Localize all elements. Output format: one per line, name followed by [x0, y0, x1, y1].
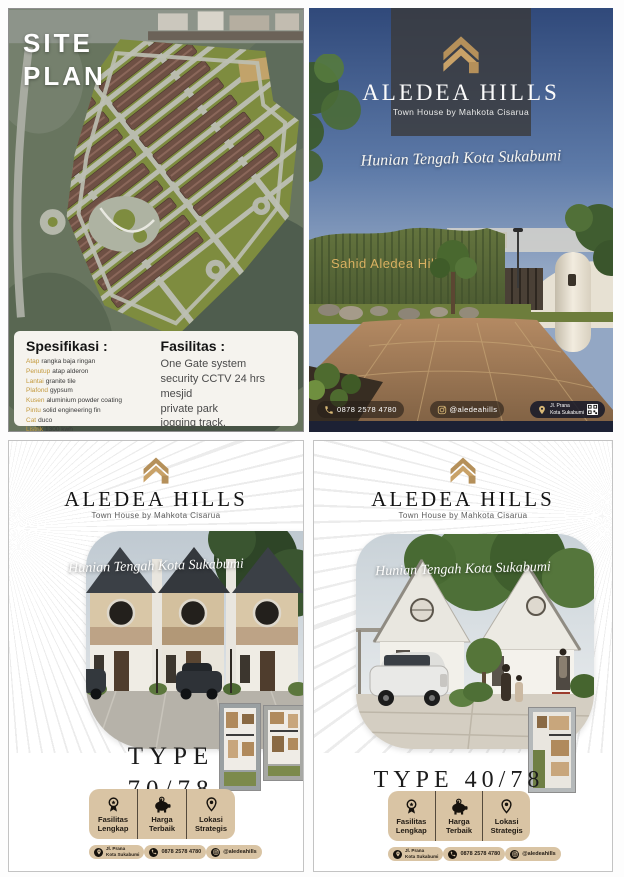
spec-item: Pintusolid engineering fin [26, 406, 147, 416]
location-pin-icon [393, 850, 402, 859]
phone-number: 0878 2578 4780 [337, 405, 397, 414]
spec-item: Plafondgypsum [26, 386, 147, 396]
instagram-icon [510, 850, 519, 859]
footer-pill-instagram[interactable]: @aledeahills [505, 847, 561, 861]
badge-facilities: FasilitasLengkap [89, 789, 137, 839]
piggy-bank-icon [153, 796, 172, 813]
badge-label: FasilitasLengkap [396, 817, 427, 835]
spec-label: Kusen [26, 397, 44, 404]
site-plan-title-line1: SITE [23, 27, 106, 60]
phone-number: 0878 2578 4780 [460, 851, 500, 858]
facility-item: security CCTV 24 hrs [161, 372, 288, 387]
instagram-handle: @aledeahills [450, 405, 498, 414]
badge-label: LokasiStrategis [491, 817, 523, 835]
contact-pill-address[interactable]: Jl. Prana Kota Sukabumi [530, 401, 605, 418]
facility-item: One Gate system [161, 357, 288, 372]
panel-site-plan: SITE PLAN Spesifikasi : Ataprangka baja … [8, 8, 304, 432]
flyer-page: SITE PLAN Spesifikasi : Ataprangka baja … [0, 0, 624, 877]
type70-line1: TYPE [97, 741, 245, 774]
facilities-heading: Fasilitas : [161, 338, 288, 354]
spec-label: Atap [26, 358, 39, 365]
brand-name: ALEDEA HILLS [314, 487, 612, 512]
spec-item: Catduco [26, 416, 147, 426]
site-plan-title: SITE PLAN [23, 27, 106, 92]
gate-sign-text: Sahid Aledea Hills [331, 256, 445, 271]
brand-subtitle: Town House by Mahkota Cisarua [9, 511, 303, 520]
badge-facilities: FasilitasLengkap [388, 791, 435, 841]
spec-label: Pintu [26, 407, 41, 414]
brand-subtitle: Town House by Mahkota Cisarua [314, 511, 612, 520]
instagram-icon [437, 405, 447, 415]
phone-icon [324, 405, 334, 415]
spec-label: Lantai [26, 378, 44, 385]
spec-item: Penutupatap alderon [26, 367, 147, 377]
panel-type-70: ALEDEA HILLS Town House by Mahkota Cisar… [8, 440, 304, 872]
medal-icon [105, 796, 122, 813]
spec-label: Cat [26, 417, 36, 424]
spec-item: Ataprangka baja ringan [26, 357, 147, 367]
spec-value: granite tile [46, 378, 76, 385]
spec-value: gypsum [50, 387, 73, 394]
floor-plan-thumbnail-2 [263, 705, 304, 781]
tree-foliage-decoration [309, 54, 371, 184]
facility-item: jogging track. [161, 416, 288, 431]
gate-footer-bar [309, 421, 613, 432]
spec-value: duco [38, 417, 52, 424]
contact-pill-instagram[interactable]: @aledeahills [430, 401, 505, 418]
spec-label: Penutup [26, 368, 50, 375]
spec-value: atap alderon [52, 368, 88, 375]
site-plan-title-line2: PLAN [23, 60, 106, 93]
specifications-column: Spesifikasi : Ataprangka baja ringan Pen… [26, 338, 147, 422]
instagram-handle: @aledeahills [223, 849, 257, 856]
qr-code-icon [587, 404, 598, 415]
spec-value: 1300 kwh [45, 426, 73, 432]
spec-value: solid engineering fin [43, 407, 101, 414]
footer-pill-address[interactable]: Jl. PranaKota Sukabumi [388, 847, 443, 861]
facility-item: mesjid [161, 387, 288, 402]
piggy-bank-icon [450, 798, 469, 815]
gate-contact-bar: 0878 2578 4780 @aledeahills Jl. Prana Ko… [317, 401, 605, 418]
location-pin-icon [537, 405, 547, 415]
instagram-handle: @aledeahills [522, 851, 556, 858]
specifications-heading: Spesifikasi : [26, 338, 147, 354]
badge-box: FasilitasLengkap HargaTerbaik LokasiStra… [388, 791, 530, 841]
footer-pill-instagram[interactable]: @aledeahills [206, 845, 262, 859]
spec-item: Kusenaluminium powder coating [26, 396, 147, 406]
medal-icon [403, 798, 420, 815]
location-pin-icon [94, 848, 103, 857]
brand-logo-icon [437, 30, 485, 78]
badge-box: FasilitasLengkap HargaTerbaik LokasiStra… [89, 789, 235, 839]
badge-price: HargaTerbaik [435, 791, 483, 841]
badge-location: LokasiStrategis [482, 791, 530, 841]
footer-contact-row: Jl. PranaKota Sukabumi 0878 2578 4780 @a… [388, 847, 530, 861]
badge-label: HargaTerbaik [149, 815, 175, 833]
spec-value: rangka baja ringan [41, 358, 95, 365]
badge-label: HargaTerbaik [446, 817, 472, 835]
address-text: Jl. PranaKota Sukabumi [405, 848, 438, 859]
badge-label: FasilitasLengkap [98, 815, 129, 833]
address-text: Jl. PranaKota Sukabumi [106, 846, 139, 857]
spec-label: Plafond [26, 387, 48, 394]
location-pin-icon [203, 796, 220, 813]
brand-name: ALEDEA HILLS [9, 487, 303, 512]
badge-location: LokasiStrategis [186, 789, 235, 839]
footer-pill-phone[interactable]: 0878 2578 4780 [443, 847, 505, 861]
instagram-icon [211, 848, 220, 857]
location-pin-icon [498, 798, 515, 815]
spec-value: aluminium powder coating [46, 397, 122, 404]
phone-icon [149, 848, 158, 857]
footer-pill-phone[interactable]: 0878 2578 4780 [144, 845, 206, 859]
panel-gate: ALEDEA HILLS Town House by Mahkota Cisar… [309, 8, 613, 432]
contact-pill-phone[interactable]: 0878 2578 4780 [317, 401, 404, 418]
spec-label: Listrik [26, 426, 43, 432]
footer-contact-row: Jl. PranaKota Sukabumi 0878 2578 4780 @a… [89, 845, 235, 859]
spec-item: Listrik1300 kwh [26, 425, 147, 432]
badge-price: HargaTerbaik [137, 789, 186, 839]
spec-facilities-box: Spesifikasi : Ataprangka baja ringan Pen… [14, 331, 298, 426]
phone-icon [448, 850, 457, 859]
spec-item: Lantaigranite tile [26, 377, 147, 387]
phone-number: 0878 2578 4780 [161, 849, 201, 856]
panel-type-40: ALEDEA HILLS Town House by Mahkota Cisar… [313, 440, 613, 872]
gate-render-image: Sahid Aledea Hills [309, 170, 613, 432]
address-text: Jl. Prana Kota Sukabumi [550, 403, 584, 416]
brand-logo-icon [446, 453, 480, 487]
brand-logo-icon [139, 453, 173, 487]
address-line2: Kota Sukabumi [550, 410, 584, 416]
facility-item: private park [161, 402, 288, 417]
footer-pill-address[interactable]: Jl. PranaKota Sukabumi [89, 845, 144, 859]
badge-label: LokasiStrategis [195, 815, 227, 833]
facilities-column: Fasilitas : One Gate system security CCT… [161, 338, 288, 422]
